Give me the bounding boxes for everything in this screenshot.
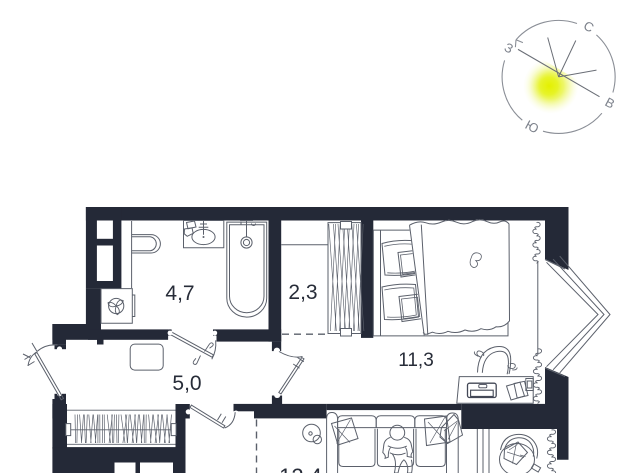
svg-text:5,0: 5,0 xyxy=(172,372,201,395)
svg-text:12,4: 12,4 xyxy=(279,464,322,473)
svg-text:11,3: 11,3 xyxy=(398,350,434,371)
svg-text:2,3: 2,3 xyxy=(288,281,317,304)
svg-text:4,7: 4,7 xyxy=(165,282,194,305)
